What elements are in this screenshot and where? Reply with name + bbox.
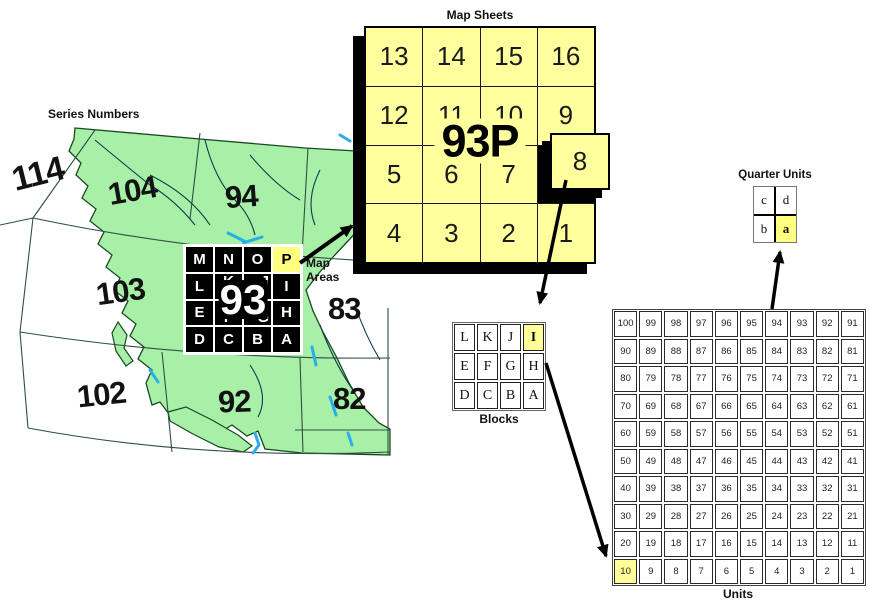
map-sheets-title: Map Sheets [364,8,596,22]
map-area-cell: B [244,327,271,352]
block-cell: B [500,382,521,409]
unit-cell: 78 [664,366,687,392]
unit-cell: 6 [715,559,738,585]
map-sheet-cell: 5 [366,146,422,204]
unit-cell: 43 [790,449,813,475]
unit-cell: 95 [740,311,763,337]
unit-cell: 98 [664,311,687,337]
block-cell: J [500,324,521,351]
unit-cell: 29 [639,504,662,530]
unit-cell: 80 [614,366,637,392]
unit-cell: 62 [816,394,839,420]
quarter-unit-cell: a [776,216,796,243]
unit-cell: 13 [790,531,813,557]
unit-cell: 26 [715,504,738,530]
unit-cell: 97 [690,311,713,337]
unit-cell: 57 [690,421,713,447]
unit-cell: 23 [790,504,813,530]
unit-cell: 65 [740,394,763,420]
unit-cell: 69 [639,394,662,420]
map-areas-center-label: 93 [219,280,268,320]
block-cell: I [523,324,544,351]
unit-cell: 71 [841,366,864,392]
unit-cell: 22 [816,504,839,530]
unit-cell: 86 [715,339,738,365]
map-sheet-cell: 13 [366,28,422,86]
map-sheet-cell: 3 [423,204,479,262]
unit-cell: 21 [841,504,864,530]
popped-sheet-8: 8 [550,133,610,190]
unit-cell: 46 [715,449,738,475]
unit-cell: 14 [765,531,788,557]
unit-cell: 61 [841,394,864,420]
unit-cell: 84 [765,339,788,365]
unit-cell: 45 [740,449,763,475]
block-cell: C [477,382,498,409]
unit-cell: 15 [740,531,763,557]
unit-cell: 3 [790,559,813,585]
series-number: 82 [333,383,365,414]
unit-cell: 67 [690,394,713,420]
unit-cell: 72 [816,366,839,392]
unit-cell: 38 [664,476,687,502]
map-sheets-center-label: 93P [434,119,525,164]
map-areas-label-line2: Areas [306,270,339,284]
series-number: 102 [76,377,128,413]
unit-cell: 9 [639,559,662,585]
unit-cell: 25 [740,504,763,530]
map-areas-label: Map Areas [306,256,339,284]
unit-cell: 83 [790,339,813,365]
map-area-cell: D [186,327,213,352]
map-sheet-cell: 1 [538,204,594,262]
unit-cell: 63 [790,394,813,420]
unit-cell: 90 [614,339,637,365]
unit-cell: 33 [790,476,813,502]
unit-cell: 32 [816,476,839,502]
unit-cell: 44 [765,449,788,475]
unit-cell: 34 [765,476,788,502]
map-sheet-cell: 14 [423,28,479,86]
unit-cell: 42 [816,449,839,475]
quarter-unit-cell: c [754,187,774,214]
popped-sheet-8-label: 8 [550,133,610,190]
unit-cell: 36 [715,476,738,502]
unit-cell: 55 [740,421,763,447]
unit-cell: 68 [664,394,687,420]
unit-cell: 40 [614,476,637,502]
unit-cell: 91 [841,311,864,337]
map-area-cell: P [273,247,300,272]
map-area-cell: N [215,247,242,272]
quarter-units-title: Quarter Units [714,169,836,181]
unit-cell: 4 [765,559,788,585]
unit-cell: 85 [740,339,763,365]
unit-cell: 56 [715,421,738,447]
unit-cell: 53 [790,421,813,447]
block-cell: F [477,353,498,380]
map-areas-label-line1: Map [306,256,339,270]
unit-cell: 64 [765,394,788,420]
block-cell: K [477,324,498,351]
map-sheet-cell: 16 [538,28,594,86]
unit-cell: 18 [664,531,687,557]
unit-cell: 50 [614,449,637,475]
map-area-cell: L [186,274,213,299]
series-number: 104 [106,171,159,210]
unit-cell: 74 [765,366,788,392]
unit-cell: 16 [715,531,738,557]
quarter-unit-cell: b [754,216,774,243]
unit-cell: 39 [639,476,662,502]
unit-cell: 82 [816,339,839,365]
block-cell: D [454,382,475,409]
unit-cell: 66 [715,394,738,420]
unit-cell: 79 [639,366,662,392]
unit-cell: 49 [639,449,662,475]
block-cell: E [454,353,475,380]
haida-gwaii-island [112,322,133,366]
map-area-cell: O [244,247,271,272]
unit-cell: 93 [790,311,813,337]
arrow-blocks-to-units [546,363,606,556]
map-sheets-grid: 1314151612111095674321 93P 8 [364,26,596,264]
unit-cell: 12 [816,531,839,557]
unit-cell: 89 [639,339,662,365]
unit-cell: 88 [664,339,687,365]
arrow-units-to-quarter [772,252,780,309]
unit-cell: 31 [841,476,864,502]
unit-cell: 52 [816,421,839,447]
unit-cell: 5 [740,559,763,585]
unit-cell: 17 [690,531,713,557]
unit-cell: 87 [690,339,713,365]
block-cell: G [500,353,521,380]
map-area-cell: M [186,247,213,272]
map-area-cell: C [215,327,242,352]
series-number: 103 [94,273,147,310]
unit-cell: 59 [639,421,662,447]
block-cell: H [523,353,544,380]
unit-cell: 20 [614,531,637,557]
map-area-cell: H [273,301,300,326]
unit-cell: 77 [690,366,713,392]
map-area-cell: I [273,274,300,299]
block-cell: A [523,382,544,409]
unit-cell: 48 [664,449,687,475]
map-sheet-cell: 12 [366,87,422,145]
unit-cell: 1 [841,559,864,585]
unit-cell: 28 [664,504,687,530]
unit-cell: 8 [664,559,687,585]
series-numbers-title: Series Numbers [48,107,139,121]
unit-cell: 19 [639,531,662,557]
map-area-cell: A [273,327,300,352]
unit-cell: 92 [816,311,839,337]
map-sheet-cell: 15 [481,28,537,86]
unit-cell: 35 [740,476,763,502]
unit-cell: 7 [690,559,713,585]
units-title: Units [612,587,864,601]
map-sheet-cell: 4 [366,204,422,262]
nts-map-numbering-diagram: 114 104 94 103 83 102 92 82 Series Numbe… [0,0,870,601]
unit-cell: 11 [841,531,864,557]
unit-cell: 76 [715,366,738,392]
unit-cell: 47 [690,449,713,475]
series-number: 94 [224,180,259,213]
unit-cell: 10 [614,559,637,585]
unit-cell: 73 [790,366,813,392]
unit-cell: 75 [740,366,763,392]
unit-cell: 2 [816,559,839,585]
map-areas-grid: MNOPLKJIEFGHDCBA 93 [183,244,303,355]
unit-cell: 94 [765,311,788,337]
unit-cell: 60 [614,421,637,447]
unit-cell: 30 [614,504,637,530]
quarter-unit-cell: d [776,187,796,214]
unit-cell: 27 [690,504,713,530]
block-cell: L [454,324,475,351]
series-number: 92 [217,385,251,417]
unit-cell: 24 [765,504,788,530]
unit-cell: 51 [841,421,864,447]
unit-cell: 54 [765,421,788,447]
series-number: 83 [328,293,360,324]
unit-cell: 58 [664,421,687,447]
map-area-cell: E [186,301,213,326]
unit-cell: 99 [639,311,662,337]
unit-cell: 81 [841,339,864,365]
unit-cell: 37 [690,476,713,502]
map-sheet-cell: 2 [481,204,537,262]
blocks-title: Blocks [452,412,546,426]
unit-cell: 96 [715,311,738,337]
unit-cell: 41 [841,449,864,475]
unit-cell: 70 [614,394,637,420]
unit-cell: 100 [614,311,637,337]
